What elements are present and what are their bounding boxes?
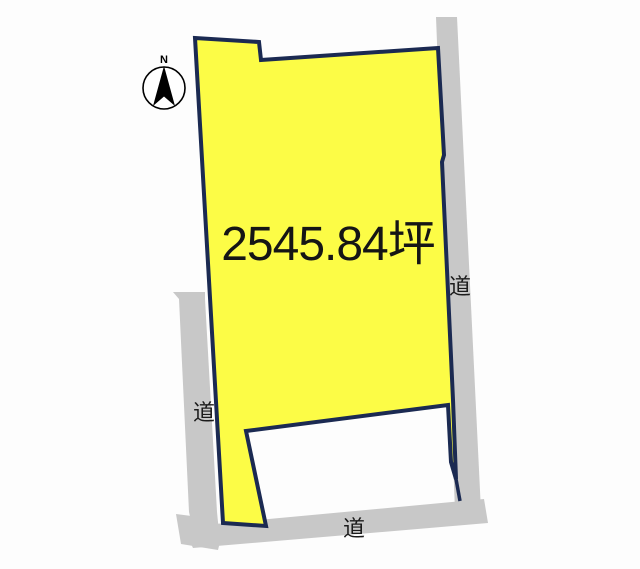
compass-north-label: N (160, 54, 168, 66)
road-label-left: 道 (193, 400, 215, 425)
road-label-bottom: 道 (343, 516, 365, 541)
road-label-right: 道 (449, 274, 471, 299)
diagram-canvas: 道 道 道 2545.84坪 N (0, 0, 640, 569)
parcel-area-label: 2545.84坪 (221, 218, 435, 271)
land-plot-diagram: 道 道 道 2545.84坪 N (0, 0, 640, 569)
